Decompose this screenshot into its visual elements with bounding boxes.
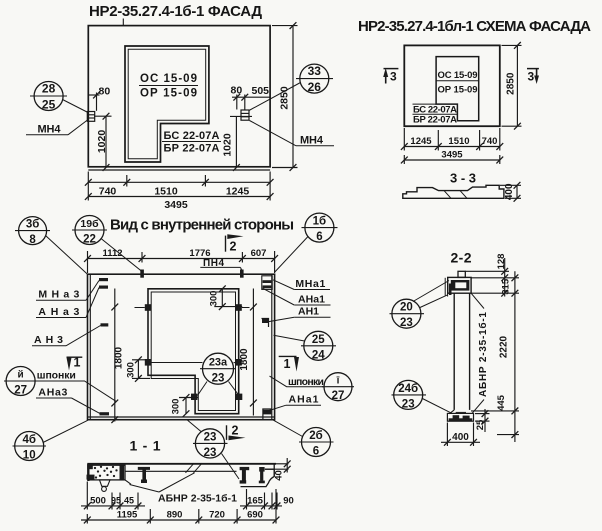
svg-text:27: 27 — [332, 390, 345, 402]
svg-text:1: 1 — [74, 356, 81, 370]
svg-text:2-2: 2-2 — [451, 250, 472, 266]
svg-text:АНа3: АНа3 — [38, 386, 67, 398]
svg-text:505: 505 — [252, 85, 270, 97]
svg-text:Вид с внутренней стороны: Вид с внутренней стороны — [110, 217, 294, 234]
svg-text:МН4: МН4 — [300, 135, 324, 147]
svg-text:АБНР 2-35-1б-1: АБНР 2-35-1б-1 — [158, 493, 237, 505]
svg-text:1510: 1510 — [448, 136, 469, 147]
svg-text:2220: 2220 — [499, 335, 510, 358]
svg-text:128: 128 — [496, 254, 507, 270]
svg-text:315: 315 — [500, 278, 511, 295]
svg-text:445: 445 — [496, 394, 507, 411]
svg-text:1245: 1245 — [226, 186, 250, 198]
svg-text:720: 720 — [209, 509, 225, 520]
svg-text:БР 22-07А: БР 22-07А — [164, 143, 220, 155]
svg-text:25: 25 — [42, 98, 56, 112]
svg-text:1020: 1020 — [96, 130, 108, 154]
svg-text:6: 6 — [316, 231, 322, 243]
svg-text:АБНР 2-35-1б-1: АБНР 2-35-1б-1 — [477, 312, 489, 397]
svg-text:40: 40 — [274, 470, 285, 481]
svg-text:3495: 3495 — [164, 199, 188, 211]
svg-text:8: 8 — [29, 234, 36, 246]
svg-text:й: й — [18, 370, 24, 381]
svg-text:БР 22-07А: БР 22-07А — [413, 115, 457, 126]
svg-text:24б: 24б — [398, 383, 418, 395]
svg-text:890: 890 — [167, 509, 183, 520]
svg-text:80: 80 — [99, 86, 111, 98]
svg-text:2850: 2850 — [506, 72, 517, 95]
svg-text:690: 690 — [247, 509, 263, 520]
svg-text:607: 607 — [251, 248, 267, 259]
svg-text:МНа3: МНа3 — [38, 289, 79, 301]
svg-text:27: 27 — [14, 385, 27, 397]
svg-text:3: 3 — [528, 70, 535, 84]
svg-text:24: 24 — [312, 349, 325, 361]
svg-text:740: 740 — [482, 136, 498, 147]
svg-text:300: 300 — [209, 291, 220, 307]
svg-text:АН1: АН1 — [298, 306, 319, 318]
svg-text:45: 45 — [124, 495, 134, 505]
svg-text:1-1: 1-1 — [130, 438, 161, 454]
svg-text:2б: 2б — [309, 430, 323, 442]
svg-text:АНа1: АНа1 — [298, 293, 325, 305]
svg-text:1800: 1800 — [114, 346, 125, 369]
svg-text:1020: 1020 — [222, 133, 234, 157]
svg-text:3495: 3495 — [441, 150, 463, 161]
svg-text:26: 26 — [308, 80, 322, 94]
svg-text:23: 23 — [204, 447, 217, 459]
svg-text:300: 300 — [126, 362, 137, 378]
svg-text:МНа1: МНа1 — [295, 278, 325, 290]
svg-text:3-3: 3-3 — [450, 171, 476, 186]
svg-text:28: 28 — [42, 82, 56, 96]
svg-text:1245: 1245 — [410, 136, 432, 147]
svg-text:ОС 15-09: ОС 15-09 — [140, 73, 197, 85]
svg-text:НР2-35.27.4-1б-1 ФАСАД: НР2-35.27.4-1б-1 ФАСАД — [89, 3, 262, 20]
svg-text:6: 6 — [313, 446, 319, 458]
svg-text:ОР 15-09: ОР 15-09 — [140, 88, 197, 100]
svg-text:19б: 19б — [80, 218, 99, 230]
svg-text:20: 20 — [400, 302, 413, 314]
svg-text:400: 400 — [452, 432, 469, 443]
svg-text:3: 3 — [390, 70, 397, 84]
svg-text:ОС 15-09: ОС 15-09 — [438, 70, 478, 81]
svg-text:300: 300 — [171, 399, 182, 415]
svg-text:1: 1 — [284, 357, 291, 371]
svg-text:23а: 23а — [209, 357, 228, 369]
svg-text:1800: 1800 — [239, 348, 250, 371]
svg-text:23: 23 — [400, 317, 413, 329]
svg-text:1б: 1б — [313, 216, 327, 228]
svg-text:3б: 3б — [26, 219, 40, 231]
svg-text:33: 33 — [308, 64, 322, 78]
svg-text:БС 22-07А: БС 22-07А — [164, 130, 220, 142]
svg-text:1510: 1510 — [154, 186, 178, 198]
svg-text:23: 23 — [204, 431, 217, 443]
svg-text:2: 2 — [232, 424, 239, 438]
svg-text:25: 25 — [312, 334, 325, 346]
svg-text:ī: ī — [336, 376, 340, 387]
svg-text:22: 22 — [83, 234, 96, 246]
svg-text:АНа1: АНа1 — [289, 394, 319, 406]
svg-text:2850: 2850 — [279, 86, 291, 110]
svg-text:500: 500 — [90, 495, 106, 506]
svg-text:1195: 1195 — [117, 509, 138, 520]
svg-text:25: 25 — [475, 419, 486, 430]
svg-text:400: 400 — [504, 183, 515, 200]
svg-text:МН4: МН4 — [38, 124, 62, 136]
svg-text:АН3: АН3 — [34, 334, 63, 346]
svg-text:165: 165 — [247, 495, 264, 506]
svg-text:10: 10 — [23, 450, 36, 462]
svg-text:740: 740 — [99, 186, 117, 198]
svg-text:2: 2 — [230, 240, 237, 254]
svg-text:шпонки: шпонки — [37, 370, 76, 382]
svg-text:95: 95 — [111, 495, 121, 505]
svg-text:4б: 4б — [22, 434, 36, 446]
svg-text:90: 90 — [283, 495, 294, 506]
svg-text:шпонки: шпонки — [288, 376, 324, 388]
svg-text:НР2-35.27.4-1бл-1 СХЕМА ФАСАДА: НР2-35.27.4-1бл-1 СХЕМА ФАСАДА — [358, 18, 591, 35]
svg-text:ОР 15-09: ОР 15-09 — [438, 85, 478, 96]
svg-text:23: 23 — [212, 373, 225, 385]
svg-text:23: 23 — [402, 398, 415, 410]
